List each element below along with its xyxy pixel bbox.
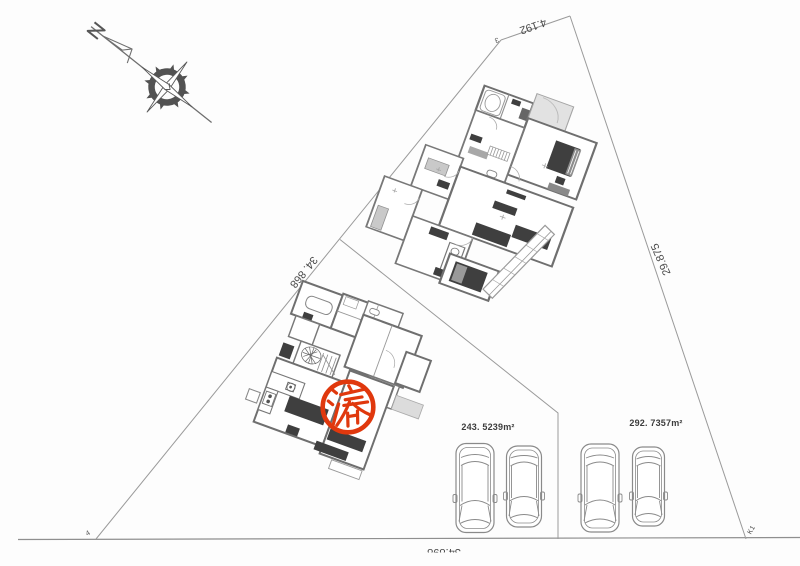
svg-text:243. 5239m²: 243. 5239m² — [461, 422, 514, 432]
svg-text:292. 7357m²: 292. 7357m² — [629, 418, 682, 428]
